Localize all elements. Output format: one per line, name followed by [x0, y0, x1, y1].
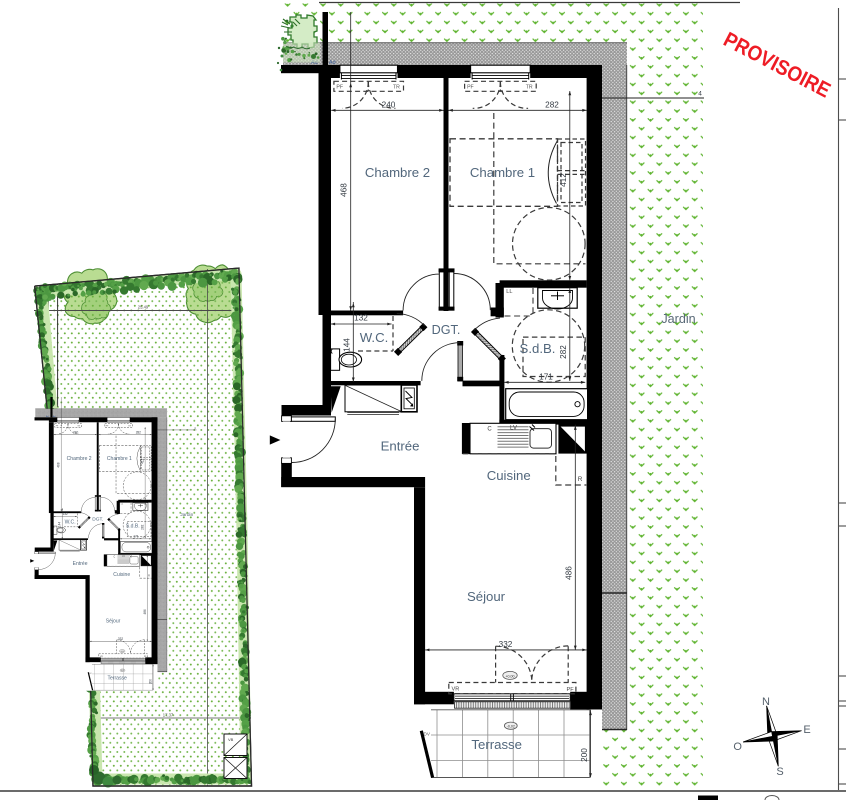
svg-text:E: E [803, 724, 810, 736]
svg-text:25,49: 25,49 [138, 305, 149, 310]
svg-text:N: N [762, 696, 770, 708]
svg-text:S: S [776, 766, 783, 778]
svg-text:VB: VB [228, 737, 234, 742]
svg-text:PROVISOIRE: PROVISOIRE [720, 28, 834, 102]
svg-text:17,37: 17,37 [163, 713, 174, 718]
svg-text:O: O [733, 741, 742, 753]
